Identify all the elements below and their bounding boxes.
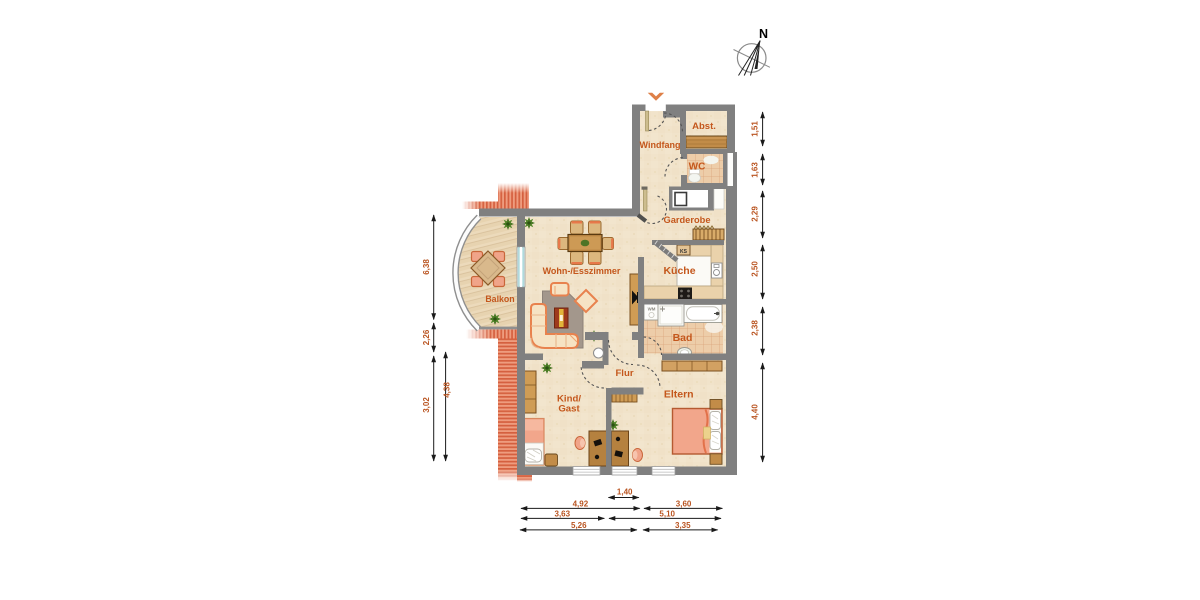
svg-text:Balkon: Balkon [485,294,514,304]
svg-text:1,63: 1,63 [750,162,759,178]
svg-text:5,26: 5,26 [571,521,587,530]
svg-text:Bad: Bad [673,332,693,344]
svg-text:Gast: Gast [558,403,580,414]
svg-text:5,10: 5,10 [659,509,675,518]
svg-text:3,60: 3,60 [676,499,692,508]
svg-text:Windfang: Windfang [640,140,681,150]
svg-text:1,40: 1,40 [617,488,633,497]
svg-text:Abst.: Abst. [692,121,716,132]
svg-text:Flur: Flur [615,368,633,379]
svg-text:WC: WC [689,161,706,172]
svg-text:N: N [759,27,768,41]
svg-text:3,02: 3,02 [422,397,431,413]
svg-text:4,40: 4,40 [750,404,759,420]
svg-text:Garderobe: Garderobe [663,215,710,225]
svg-text:2,38: 2,38 [750,320,759,336]
svg-text:WM: WM [648,307,656,312]
svg-text:Eltern: Eltern [664,389,694,401]
svg-text:4,92: 4,92 [573,499,589,508]
svg-text:6,38: 6,38 [422,259,431,275]
svg-text:KS: KS [680,249,688,255]
svg-text:2,50: 2,50 [750,261,759,277]
svg-text:2,29: 2,29 [750,206,759,222]
svg-text:1,51: 1,51 [750,121,759,137]
svg-text:3,35: 3,35 [675,521,691,530]
svg-text:2,26: 2,26 [422,329,431,345]
svg-text:3,63: 3,63 [555,509,571,518]
svg-text:Wohn-/Esszimmer: Wohn-/Esszimmer [543,266,621,276]
svg-text:Küche: Küche [663,265,695,277]
svg-text:4,38: 4,38 [443,382,452,398]
